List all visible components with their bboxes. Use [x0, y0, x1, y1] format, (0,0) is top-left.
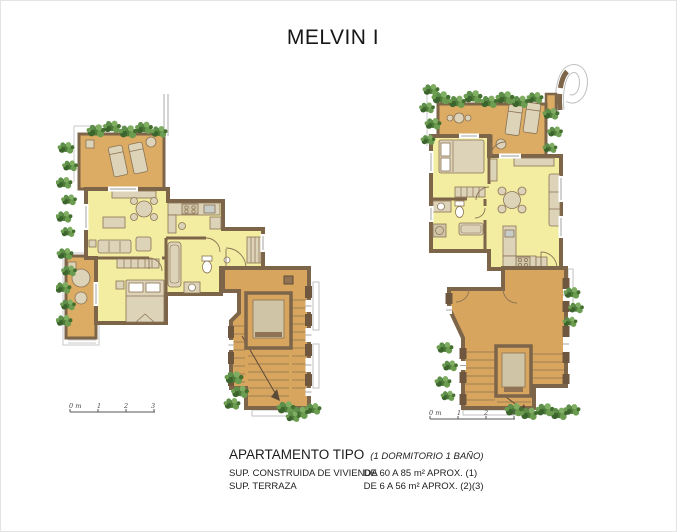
sink — [505, 230, 514, 237]
built-area-label: SUP. CONSTRUIDA DE VIVIENDA — [229, 468, 361, 479]
svg-text:3: 3 — [511, 409, 515, 417]
shaft-box — [284, 276, 293, 284]
svg-text:1: 1 — [97, 402, 101, 410]
sink — [204, 205, 215, 213]
stool — [179, 223, 186, 230]
svg-text:1: 1 — [457, 409, 461, 417]
scale-bar: 0 m 1 2 3 — [69, 402, 155, 412]
fridge — [210, 217, 221, 229]
svg-text:0 m: 0 m — [429, 409, 441, 417]
page-title: MELVIN I — [1, 26, 665, 50]
sofa — [98, 240, 131, 253]
wardrobe — [455, 187, 485, 197]
toilet — [203, 261, 212, 273]
left-floor-plan: 0 m 1 2 3 — [56, 86, 346, 426]
curved-wall — [559, 68, 583, 110]
heading-text: APARTAMENTO TIPO — [229, 447, 364, 462]
elevator — [246, 293, 291, 348]
elevator — [496, 346, 531, 396]
stove — [516, 257, 530, 267]
stair-landing — [446, 268, 570, 413]
tv-sideboard — [112, 191, 156, 198]
washer — [433, 224, 446, 237]
washbasin — [438, 203, 445, 210]
cabinet — [490, 159, 497, 181]
side-table — [89, 240, 96, 247]
svg-text:3: 3 — [151, 402, 155, 410]
built-area-value: DE 60 A 85 m² APROX. (1) — [364, 468, 478, 479]
right-floor-plan: 0 m 1 2 3 — [419, 56, 609, 428]
hall-closet — [247, 237, 261, 263]
tv-sideboard — [514, 158, 554, 166]
terrace-area-row: SUP. TERRAZA DE 6 A 56 m² APROX. (2)(3) — [229, 481, 484, 492]
svg-text:0 m: 0 m — [69, 402, 81, 410]
toilet — [456, 207, 464, 218]
floor-plan-sheet: MELVIN I — [0, 0, 677, 532]
heading-note: (1 DORMITORIO 1 BAÑO) — [370, 451, 483, 462]
terrace-area-label: SUP. TERRAZA — [229, 481, 361, 492]
nightstand — [116, 281, 124, 289]
coffee-table — [103, 217, 125, 228]
terrace-area-value: DE 6 A 56 m² APROX. (2)(3) — [364, 481, 484, 492]
armchair — [136, 237, 151, 251]
apartment-type-heading: APARTAMENTO TIPO(1 DORMITORIO 1 BAÑO) — [229, 447, 484, 462]
svg-text:2: 2 — [123, 402, 128, 410]
upper-terrace — [79, 134, 164, 189]
svg-text:2: 2 — [483, 409, 488, 417]
washbasin — [189, 284, 196, 291]
wc-basin — [224, 257, 230, 263]
stove — [182, 204, 198, 214]
sofa — [549, 174, 560, 226]
built-area-row: SUP. CONSTRUIDA DE VIVIENDA DE 60 A 85 m… — [229, 468, 477, 479]
